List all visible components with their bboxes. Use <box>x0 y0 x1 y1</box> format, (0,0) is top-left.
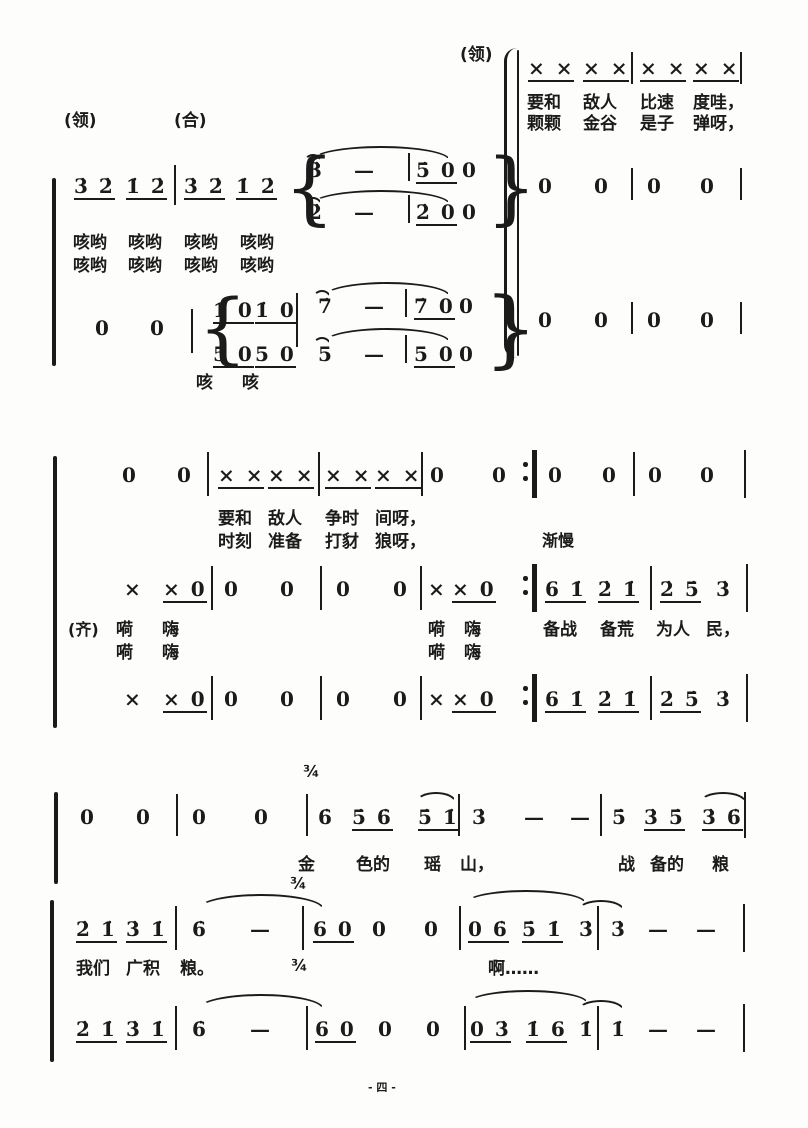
note-token: × <box>124 688 143 710</box>
note-token: × × <box>640 57 686 82</box>
note-token: 0 <box>700 175 716 197</box>
note-token: 5 <box>318 343 334 365</box>
barline <box>746 564 748 612</box>
note-token: 0 <box>602 464 618 486</box>
barline <box>597 906 599 950</box>
score-label: 渐慢 <box>542 531 574 550</box>
lyric-token: 敌人 <box>583 94 617 113</box>
note-token: 0 <box>136 806 152 828</box>
lyric-token: 咳哟 <box>240 234 274 253</box>
lyric-token: 敌人 <box>268 510 302 529</box>
note-token: — <box>364 343 386 365</box>
note-token: 0 <box>224 688 240 710</box>
lyric-token: 咳哟 <box>128 234 162 253</box>
note-token: 5̇ <box>612 806 628 828</box>
note-token: — <box>696 1018 718 1040</box>
slur-tie-arc <box>324 282 450 296</box>
note-token: × 0 <box>452 578 496 603</box>
note-token: 0 <box>426 1018 442 1040</box>
barline <box>302 906 304 950</box>
note-token: × 0 <box>163 578 207 603</box>
barline <box>421 452 423 496</box>
note-token: — <box>250 1018 272 1040</box>
lyric-token: 要和 <box>218 510 252 529</box>
barline <box>176 794 178 836</box>
note-token: 3̇ 6̇ <box>702 806 743 831</box>
barline <box>597 1006 599 1050</box>
repeat-dot <box>523 576 528 581</box>
note-token: 5̇ 6̇ <box>352 806 393 831</box>
note-token: 0 <box>254 806 270 828</box>
note-token: — <box>696 918 718 940</box>
lyric-token: 咳 <box>242 374 259 393</box>
lyric-token: 备的 <box>650 856 684 875</box>
barline <box>306 1006 308 1050</box>
lyric-token: 瑶 <box>424 856 441 875</box>
note-token: 0 <box>280 578 296 600</box>
lyric-token: 广积 <box>126 960 160 979</box>
note-token: × 0 <box>452 688 496 713</box>
note-token: 6̇ <box>192 1018 208 1040</box>
lyric-token: 嗬 <box>428 621 445 640</box>
note-token: 2̇ 5̇ <box>660 578 701 603</box>
note-token: 0 <box>462 201 478 223</box>
note-token: × <box>428 688 447 710</box>
note-token: 0 <box>648 464 664 486</box>
note-token: 1̇ 0 <box>255 299 296 324</box>
note-token: 0 <box>700 464 716 486</box>
barline <box>631 302 633 334</box>
note-token: 5 0 <box>255 343 296 368</box>
slur-tie-arc <box>468 990 588 1003</box>
barline <box>631 168 633 200</box>
note-token: 0 <box>378 1018 394 1040</box>
note-token: 3̇ <box>579 918 595 940</box>
note-token: 6 1̇ <box>545 578 586 603</box>
lyric-token: 嗨 <box>162 644 179 663</box>
barline <box>459 906 461 950</box>
note-token: 0 <box>280 688 296 710</box>
note-token: 0 <box>462 159 478 181</box>
note-token: — <box>570 806 592 828</box>
barline <box>740 52 742 84</box>
repeat-dot <box>523 476 528 481</box>
note-token: 2̇ 0 <box>416 201 457 226</box>
note-token: 0 <box>538 309 554 331</box>
note-token: 0 <box>177 464 193 486</box>
lyric-token: 度哇， <box>693 94 744 113</box>
note-token: 0 <box>430 464 446 486</box>
lyric-token: 我们 <box>76 960 110 979</box>
lyric-token: 咳哟 <box>184 257 218 276</box>
note-token: 2̇ 1̇ <box>598 578 639 603</box>
lyric-token: 嗬 <box>116 621 133 640</box>
note-token: 2̇ 1̇ <box>76 918 117 943</box>
note-token: 2̇ 5̇ <box>660 688 701 713</box>
system-bracket <box>53 456 57 728</box>
lyric-token: 嗨 <box>162 621 179 640</box>
score-label: (领) <box>64 112 97 131</box>
note-token: 0 <box>150 317 166 339</box>
note-token: 6 0 <box>313 918 354 943</box>
barline <box>633 452 635 496</box>
lyric-token: 打豺 <box>325 533 359 552</box>
note-token: 5̇ 1̇ <box>522 918 563 943</box>
barline <box>320 676 322 720</box>
note-token: — <box>524 806 546 828</box>
note-token: 0 <box>459 343 475 365</box>
lyric-token: 咳哟 <box>128 257 162 276</box>
barline <box>191 309 193 353</box>
note-token: — <box>364 295 386 317</box>
lyric-token: 咳哟 <box>184 234 218 253</box>
note-token: 0 <box>538 175 554 197</box>
note-token: × × <box>268 464 314 489</box>
note-token: 3̇ <box>716 578 732 600</box>
note-token: 0 <box>336 688 352 710</box>
lyric-token: 咳哟 <box>73 257 107 276</box>
note-token: × × <box>693 57 739 82</box>
lyric-token: 间呀， <box>375 510 426 529</box>
barline <box>306 794 308 836</box>
barline <box>532 450 537 498</box>
note-token: 0 <box>122 464 138 486</box>
barline <box>207 452 209 496</box>
lyric-token: 时刻 <box>218 533 252 552</box>
score-label: ¾ <box>303 762 320 781</box>
note-token: 2̇ 1̇ <box>76 1018 117 1043</box>
note-token: 0 <box>594 175 610 197</box>
barline <box>318 452 320 496</box>
lyric-token: 色的 <box>356 856 390 875</box>
barline <box>211 566 213 610</box>
barline <box>743 1004 745 1052</box>
note-token: 5 0 <box>414 343 455 368</box>
lyric-token: 嗨 <box>464 621 481 640</box>
score-label: (合) <box>174 112 207 131</box>
slur-tie-arc <box>700 792 746 802</box>
note-token: 6̇ <box>192 918 208 940</box>
lyric-token: 嗬 <box>428 644 445 663</box>
lyric-token: 嗬 <box>116 644 133 663</box>
note-token: 0 <box>393 688 409 710</box>
note-token: 1̇ 6 <box>526 1018 567 1043</box>
note-token: 6 0 <box>315 1018 356 1043</box>
note-token: 1̇ <box>579 1018 595 1040</box>
lyric-token: 为人 <box>656 621 690 640</box>
repeat-dot <box>523 700 528 705</box>
lyric-token: 是子 <box>640 115 674 134</box>
note-token: 0 <box>424 918 440 940</box>
lyric-token: 民， <box>706 621 740 640</box>
lyric-token: 备荒 <box>600 621 634 640</box>
barline <box>458 794 460 836</box>
slur-tie-arc <box>324 328 450 342</box>
note-token: — <box>354 201 376 223</box>
note-token: 1̇ 2̇ <box>236 175 277 200</box>
note-token: 0 <box>700 309 716 331</box>
note-token: 0 <box>459 295 475 317</box>
note-token: 0 <box>492 464 508 486</box>
barline <box>320 566 322 610</box>
barline <box>746 674 748 722</box>
lyric-token: 要和 <box>527 94 561 113</box>
note-token: — <box>648 1018 670 1040</box>
note-token: 5̇ 1̇ <box>418 806 459 831</box>
lyric-token: 咳 <box>196 374 213 393</box>
note-token: 0 <box>548 464 564 486</box>
divisi-open-brace: { <box>284 150 335 226</box>
sheet-music-page: × ×× ×× ×× ×000000003̇ 2̇1̇ 2̇3̇ 2̇1̇ 2̇… <box>0 0 808 1128</box>
repeat-dot <box>523 686 528 691</box>
note-token: 3̇ <box>611 918 627 940</box>
system-bracket <box>52 178 56 366</box>
note-token: 0 <box>393 578 409 600</box>
lyric-token: 准备 <box>268 533 302 552</box>
note-token: 0 <box>192 806 208 828</box>
note-token: 1̇ 2̇ <box>126 175 167 200</box>
lyric-token: 咳哟 <box>240 257 274 276</box>
slur-tie-arc <box>198 894 324 909</box>
barline <box>532 674 537 722</box>
note-token: 6 1̇ <box>545 688 586 713</box>
lyric-token: 比速 <box>640 94 674 113</box>
note-token: 3̇ 1̇ <box>126 1018 167 1043</box>
note-token: 0 <box>647 309 663 331</box>
lyric-token: 啊…… <box>488 960 539 979</box>
barline <box>464 1006 466 1050</box>
note-token: 1̇ <box>611 1018 627 1040</box>
note-token: 3̇ <box>716 688 732 710</box>
lyric-token: 颗颗 <box>527 115 561 134</box>
lyric-token: 粮。 <box>180 960 214 979</box>
barline <box>211 676 213 720</box>
system-bracket <box>54 792 58 884</box>
lyric-token: 狼呀， <box>375 533 426 552</box>
score-label: (齐) <box>68 620 99 639</box>
note-token: × × <box>375 464 421 489</box>
repeat-dot <box>523 462 528 467</box>
repeat-dot <box>523 590 528 595</box>
lyric-token: 争时 <box>325 510 359 529</box>
system-bracket <box>50 900 54 1062</box>
barline <box>650 566 652 610</box>
note-token: × <box>428 578 447 600</box>
lyric-token: 战 <box>618 856 635 875</box>
note-token: × <box>124 578 143 600</box>
barline <box>743 904 745 952</box>
note-token: 0 <box>336 578 352 600</box>
barline <box>175 1006 177 1050</box>
note-token: 3̇ <box>472 806 488 828</box>
note-token: × × <box>218 464 264 489</box>
note-token: 0 3̇ <box>470 1018 511 1043</box>
lyric-token: 弹呀， <box>693 115 744 134</box>
note-token: 7̇ 0 <box>414 295 455 320</box>
barline <box>740 168 742 200</box>
note-token: × 0 <box>163 688 207 713</box>
score-label: ¾ <box>291 956 308 975</box>
divisi-open-brace: { <box>198 292 247 366</box>
note-token: 3̇ 2̇ <box>74 175 115 200</box>
barline <box>174 165 176 205</box>
note-token: 3̇ 5̇ <box>644 806 685 831</box>
lyric-token: 金 <box>298 856 315 875</box>
score-label: ¾ <box>290 874 307 893</box>
slur-tie-arc <box>198 994 324 1009</box>
note-token: 3̇ 1̇ <box>126 918 167 943</box>
slur-tie-arc <box>416 792 456 802</box>
note-token: 2̇ 1̇ <box>598 688 639 713</box>
slur-tie-arc <box>578 1000 624 1010</box>
barline <box>740 302 742 334</box>
barline <box>296 293 298 347</box>
note-token: 0 <box>594 309 610 331</box>
slur-tie-arc <box>578 900 624 910</box>
note-token: — <box>648 918 670 940</box>
barline <box>420 676 422 720</box>
note-token: × × <box>528 57 574 82</box>
barline <box>600 794 602 836</box>
note-token: × × <box>583 57 629 82</box>
score-label: - 四 - <box>368 1078 396 1097</box>
note-token: 0 <box>372 918 388 940</box>
note-token: 0 6̇ <box>468 918 509 943</box>
score-label: (领) <box>460 46 493 65</box>
note-token: 0 <box>224 578 240 600</box>
note-token: — <box>250 918 272 940</box>
note-token: × × <box>325 464 371 489</box>
barline <box>650 676 652 720</box>
note-token: 6̇ <box>318 806 334 828</box>
barline <box>420 566 422 610</box>
note-token: 0 <box>80 806 96 828</box>
barline <box>744 450 746 498</box>
lyric-token: 金谷 <box>583 115 617 134</box>
barline <box>532 564 537 612</box>
barline <box>631 52 633 84</box>
lyric-token: 山， <box>460 856 494 875</box>
lyric-token: 粮 <box>712 856 729 875</box>
note-token: 7̇ <box>318 295 334 317</box>
lyric-token: 备战 <box>543 621 577 640</box>
slur-tie-arc <box>466 890 586 903</box>
note-token: 3̇ 2̇ <box>184 175 225 200</box>
note-token: 0 <box>647 175 663 197</box>
note-token: 0 <box>95 317 111 339</box>
lyric-token: 咳哟 <box>73 234 107 253</box>
note-token: 5̇ 0 <box>416 159 457 184</box>
barline <box>175 906 177 950</box>
note-token: — <box>354 159 376 181</box>
lyric-token: 嗨 <box>464 644 481 663</box>
